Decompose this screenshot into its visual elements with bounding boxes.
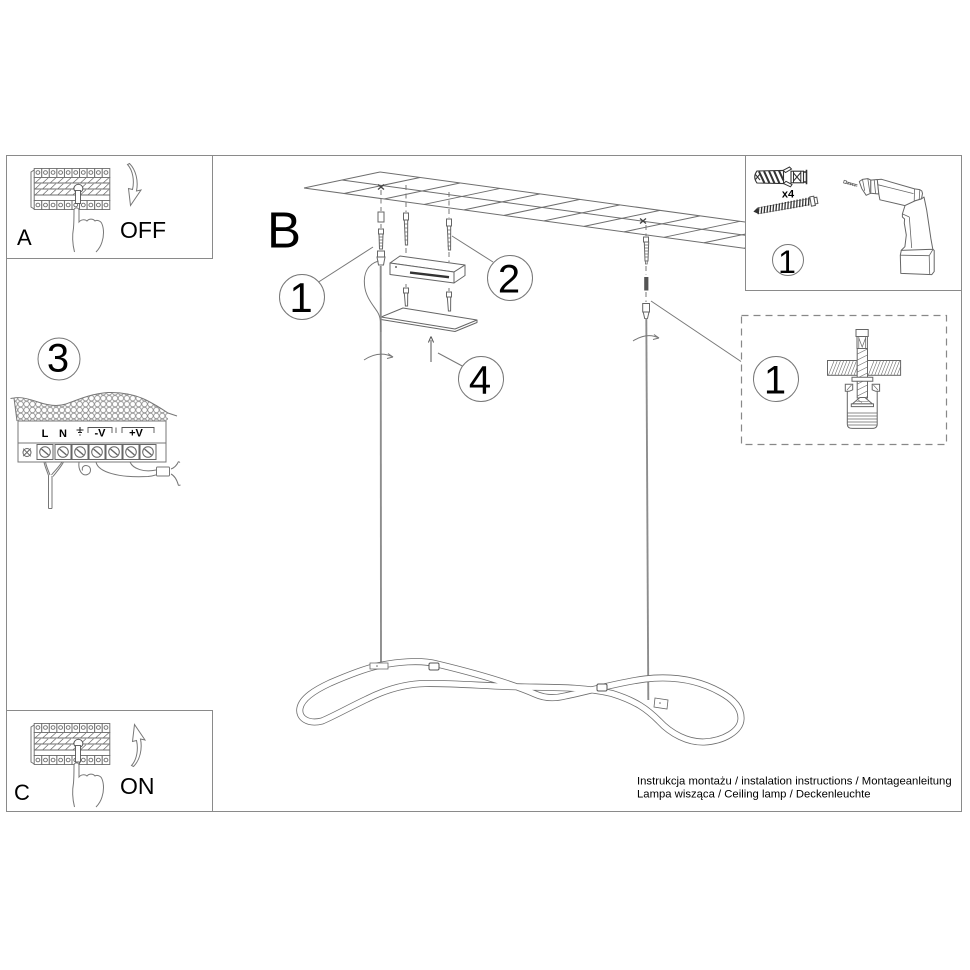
- svg-text:A: A: [17, 225, 32, 250]
- svg-text:L: L: [42, 428, 49, 440]
- svg-text:C: C: [14, 780, 30, 805]
- svg-text:B: B: [267, 202, 301, 259]
- svg-text:N: N: [59, 428, 67, 440]
- svg-text:3: 3: [47, 337, 69, 381]
- svg-text:1: 1: [764, 359, 786, 403]
- svg-text:2: 2: [498, 258, 520, 302]
- svg-text:-V: -V: [95, 428, 107, 440]
- svg-text:+V: +V: [129, 428, 143, 440]
- svg-text:4: 4: [469, 359, 491, 403]
- svg-text:x4: x4: [782, 189, 795, 201]
- svg-text:ON: ON: [120, 773, 155, 799]
- svg-text:Lampa wisząca / Ceiling lamp /: Lampa wisząca / Ceiling lamp / Deckenleu…: [637, 789, 871, 801]
- svg-text:1: 1: [289, 274, 312, 321]
- svg-text:OFF: OFF: [120, 217, 166, 243]
- svg-text:Instrukcja montażu / instalati: Instrukcja montażu / instalation instruc…: [637, 776, 952, 788]
- svg-text:1: 1: [778, 244, 796, 280]
